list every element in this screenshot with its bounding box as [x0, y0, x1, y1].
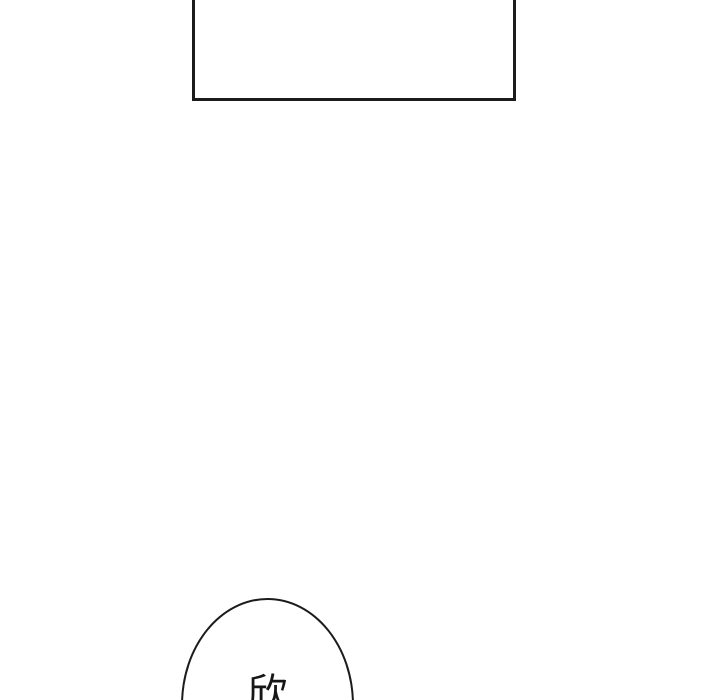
speech-bubble: 欣 — [181, 598, 354, 700]
speech-bubble-text: 欣 — [248, 672, 288, 700]
comic-panel — [192, 0, 516, 101]
comic-page: 欣 — [0, 0, 720, 700]
